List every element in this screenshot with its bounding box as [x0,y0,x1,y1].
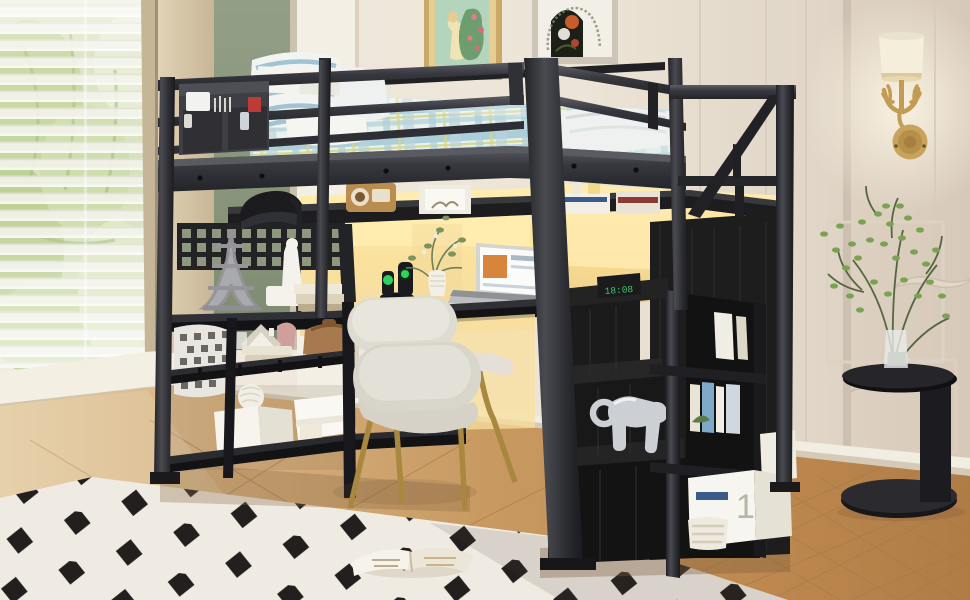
svg-text:18:08: 18:08 [604,284,634,297]
svg-text:1: 1 [736,488,755,526]
